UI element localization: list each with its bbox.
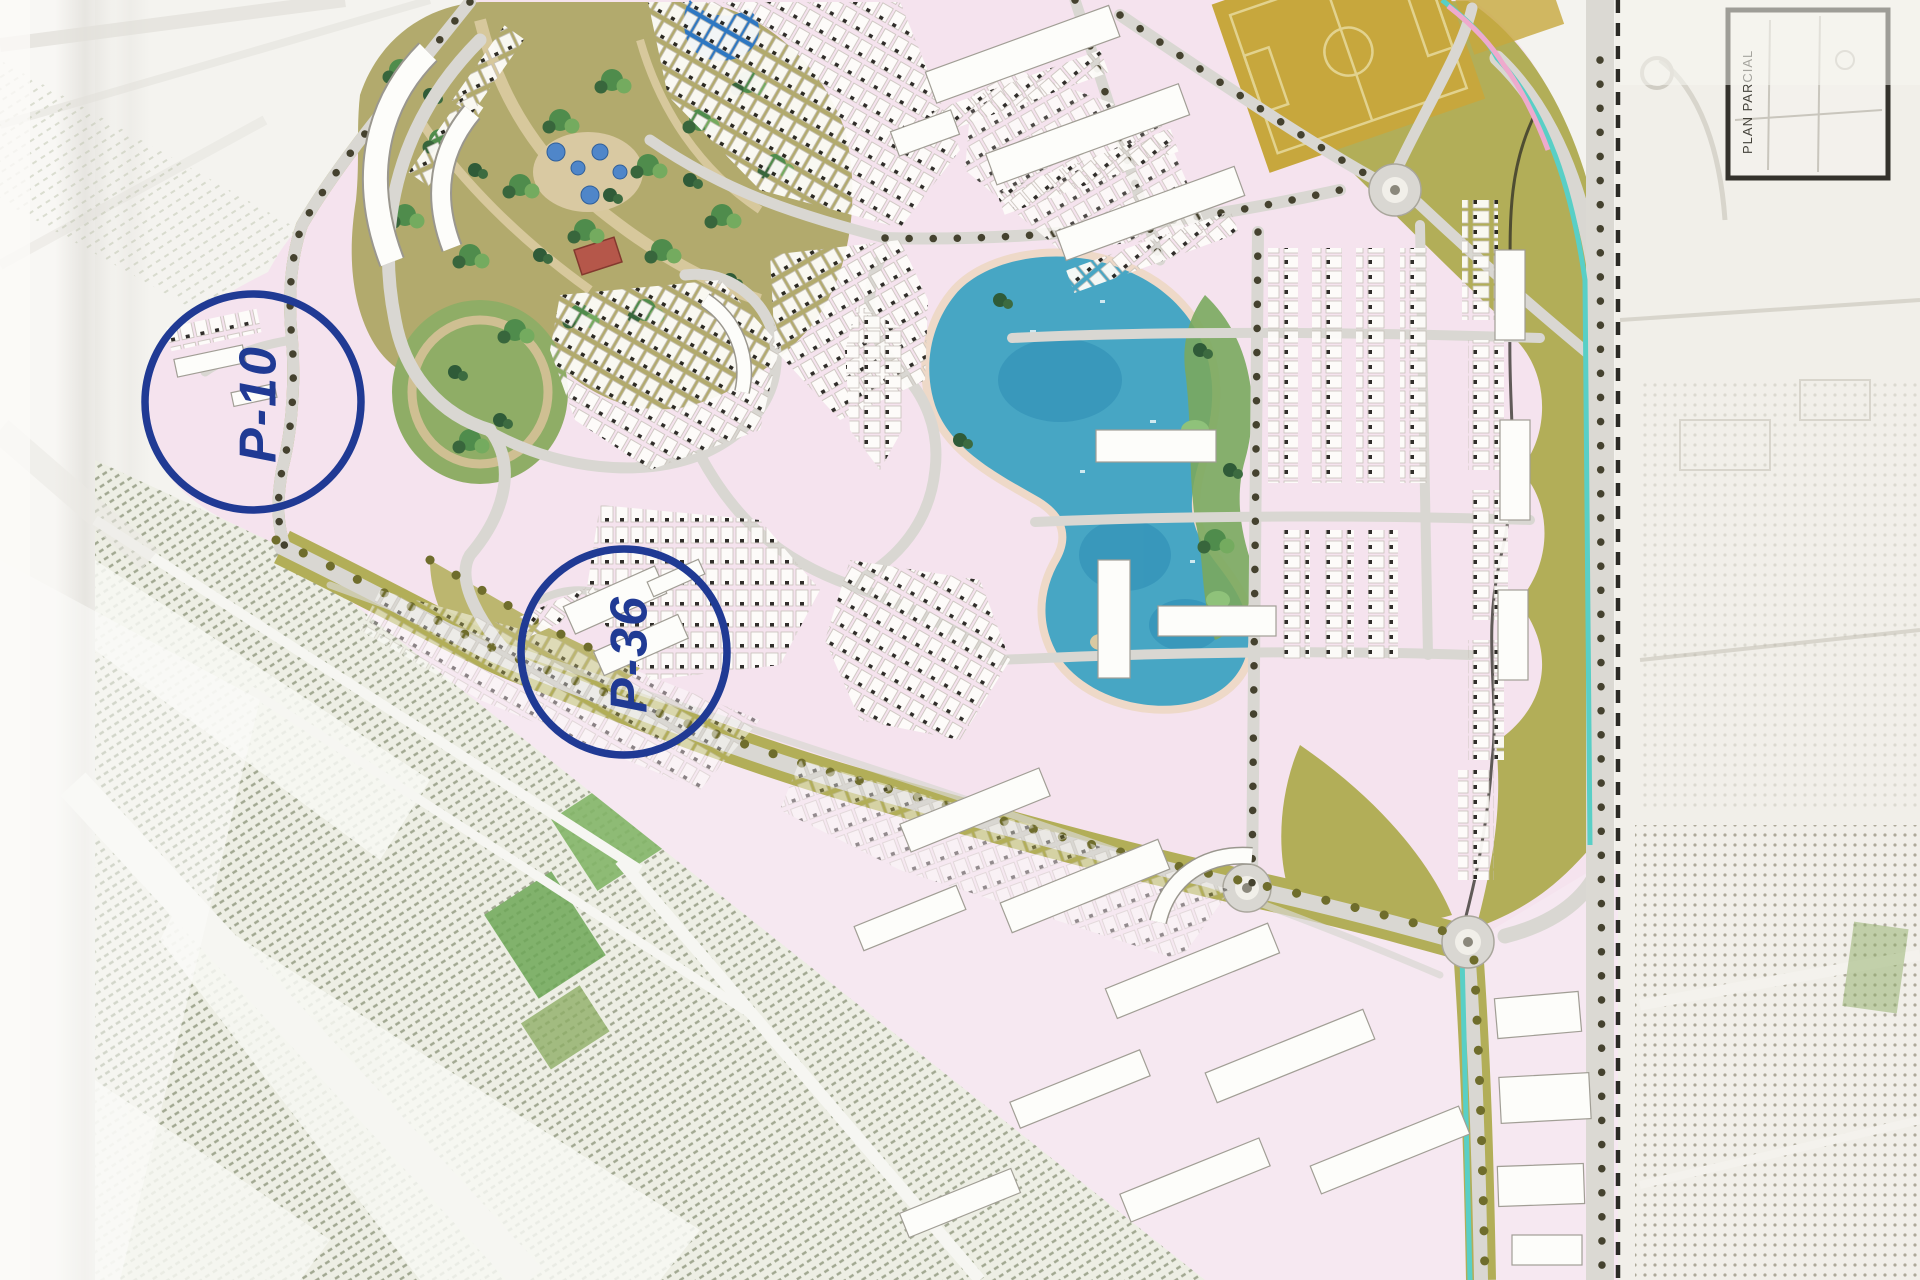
building-slab [1096, 430, 1216, 462]
top-right-wash [1620, 0, 1920, 85]
annotation-label-p36: P-36 [601, 595, 659, 713]
roundabout-northeast [1369, 164, 1421, 216]
page-edge [0, 0, 30, 1280]
building-slab [1500, 420, 1530, 520]
roundabout-southeast [1442, 916, 1494, 968]
building-slab [1512, 1235, 1582, 1265]
annotation-label-p10: P-10 [230, 345, 288, 463]
building-slab [1497, 1164, 1584, 1207]
building-slab [1098, 560, 1130, 678]
building-slab [1494, 991, 1581, 1038]
building-slab [1158, 606, 1276, 636]
building-slab [1498, 590, 1528, 680]
building-slab [1495, 250, 1525, 340]
orchard-grid [1635, 825, 1920, 1280]
east-cross-street-2 [1035, 516, 1530, 522]
masterplan-map: PLAN PARCIAL P-10 P-36 [0, 0, 1920, 1280]
building-slab [1499, 1073, 1591, 1124]
offsite-green-patch [1842, 922, 1908, 1014]
right-margin-area [1615, 0, 1920, 1280]
masterplan-scan-page: PLAN PARCIAL P-10 P-36 [0, 0, 1920, 1280]
faint-orchard-grid [1640, 380, 1920, 810]
